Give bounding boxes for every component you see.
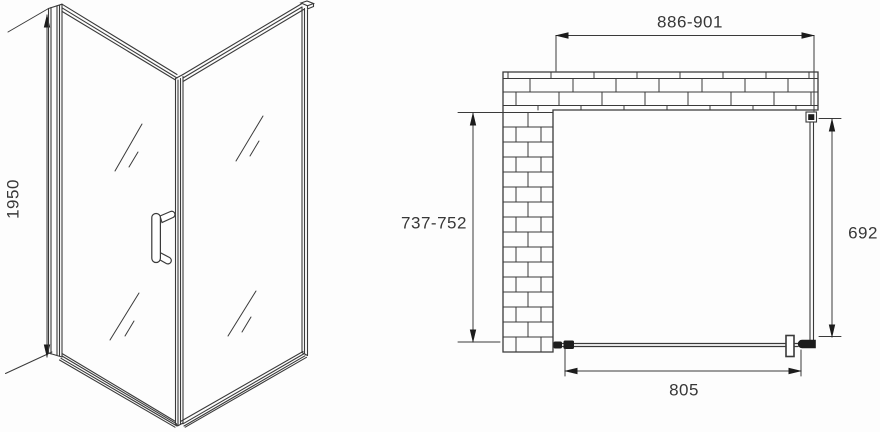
perspective-view [6, 1, 314, 427]
rear-post [301, 1, 314, 356]
door-handle-plan [786, 336, 794, 357]
plan-view [458, 32, 841, 376]
depth-dimension-label: 737-752 [401, 215, 467, 232]
glass-side-panel [810, 122, 814, 341]
wall-bracket [806, 112, 817, 122]
side-panel-dimension-label: 692 [848, 225, 878, 242]
side-panel-dimension [819, 118, 841, 338]
glass-reflection-marks [110, 124, 142, 340]
glass-reflection-marks [228, 116, 263, 336]
corner-post [176, 75, 184, 426]
brick-wall [503, 72, 818, 352]
door-handle-3d [152, 211, 175, 264]
door-hinge [554, 341, 575, 350]
technical-drawing-canvas: 1950 886-901 737-752 692 805 [0, 0, 880, 432]
width-dimension-label: 886-901 [657, 14, 723, 31]
glass-door [559, 344, 798, 347]
side-panel-3d [181, 4, 307, 428]
height-dimension-label: 1950 [5, 179, 22, 219]
door-panel-3d [60, 4, 178, 427]
left-frame-post [49, 4, 63, 357]
door-dimension-label: 805 [669, 382, 699, 399]
door-dimension [564, 349, 802, 376]
corner-bracket [798, 340, 816, 348]
brick-joints [503, 72, 818, 352]
